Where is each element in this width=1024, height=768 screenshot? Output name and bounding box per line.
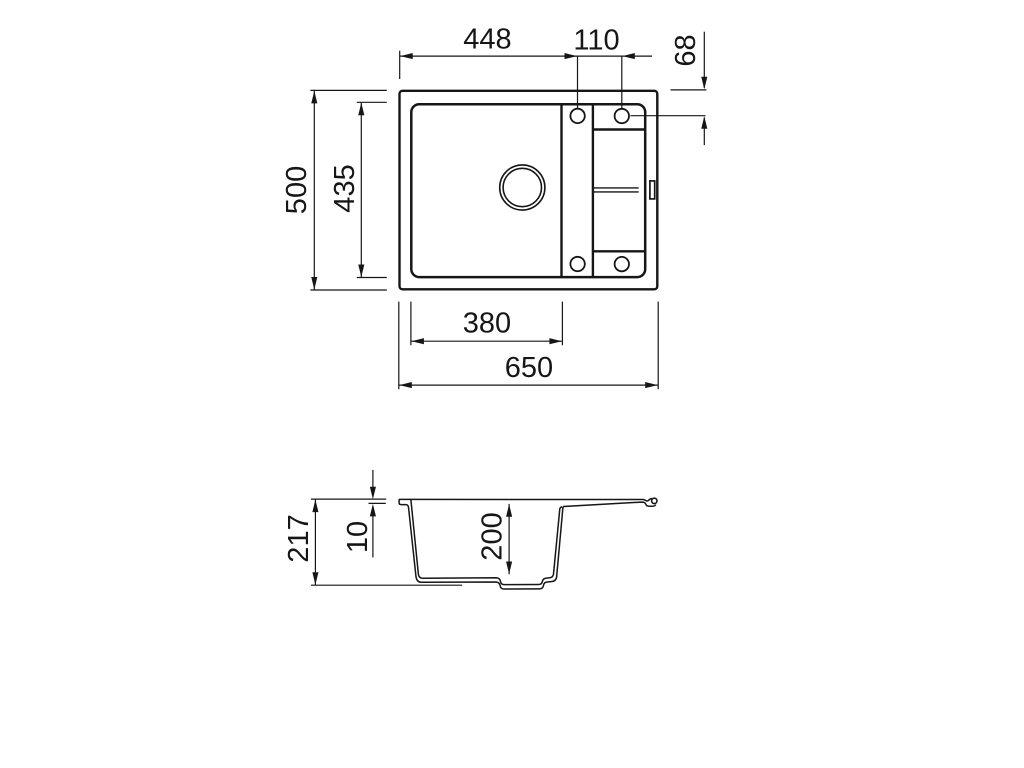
svg-text:500: 500 (281, 166, 313, 214)
svg-text:110: 110 (573, 24, 619, 56)
svg-text:200: 200 (476, 512, 508, 560)
svg-text:448: 448 (463, 23, 511, 55)
svg-text:435: 435 (329, 164, 361, 212)
svg-text:380: 380 (463, 307, 511, 339)
svg-text:650: 650 (505, 352, 553, 384)
svg-text:217: 217 (283, 514, 315, 562)
svg-text:10: 10 (342, 521, 374, 553)
svg-text:68: 68 (670, 34, 702, 66)
